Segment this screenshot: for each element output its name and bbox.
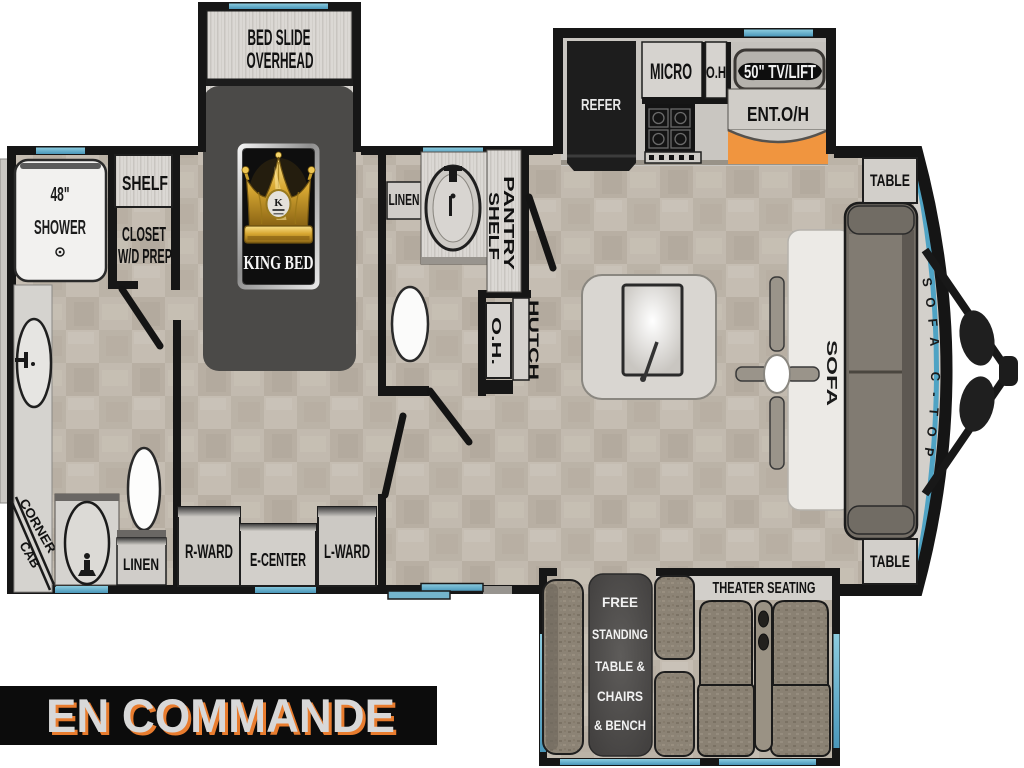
svg-text:TABLE &: TABLE & [595,658,645,674]
svg-text:SHOWER: SHOWER [34,217,86,239]
svg-text:48": 48" [51,184,70,206]
svg-text:LINEN: LINEN [389,192,420,209]
svg-text:BED SLIDE: BED SLIDE [248,25,311,50]
svg-text:TABLE: TABLE [870,171,910,190]
svg-text:50" TV/LIFT: 50" TV/LIFT [744,62,816,82]
svg-text:O.H.: O.H. [489,317,504,365]
svg-text:O.H: O.H [706,63,726,82]
svg-text:THEATER SEATING: THEATER SEATING [713,580,816,597]
svg-text:& BENCH: & BENCH [594,717,646,733]
svg-text:CHAIRS: CHAIRS [597,688,643,704]
svg-text:K: K [274,197,283,209]
svg-text:OVERHEAD: OVERHEAD [247,48,314,73]
svg-text:W/D PREP: W/D PREP [118,246,172,268]
svg-text:HUTCH: HUTCH [526,300,542,380]
svg-text:SOFA: SOFA [823,340,840,406]
svg-text:STANDING: STANDING [592,626,648,642]
svg-text:SHELF: SHELF [122,173,168,195]
svg-text:E-CENTER: E-CENTER [250,550,306,570]
svg-text:ENT.O/H: ENT.O/H [747,104,809,126]
svg-text:FREE: FREE [602,594,638,610]
svg-text:EN COMMANDE: EN COMMANDE [46,689,395,742]
svg-text:LINEN: LINEN [123,555,159,574]
svg-text:L-WARD: L-WARD [324,542,370,563]
svg-text:REFER: REFER [581,97,621,114]
svg-text:MICRO: MICRO [650,59,692,84]
svg-text:KING BED: KING BED [244,252,314,274]
svg-text:CLOSET: CLOSET [122,224,166,246]
svg-text:R-WARD: R-WARD [185,542,233,563]
svg-text:TABLE: TABLE [870,552,910,571]
svg-text:SHELF: SHELF [485,192,502,260]
